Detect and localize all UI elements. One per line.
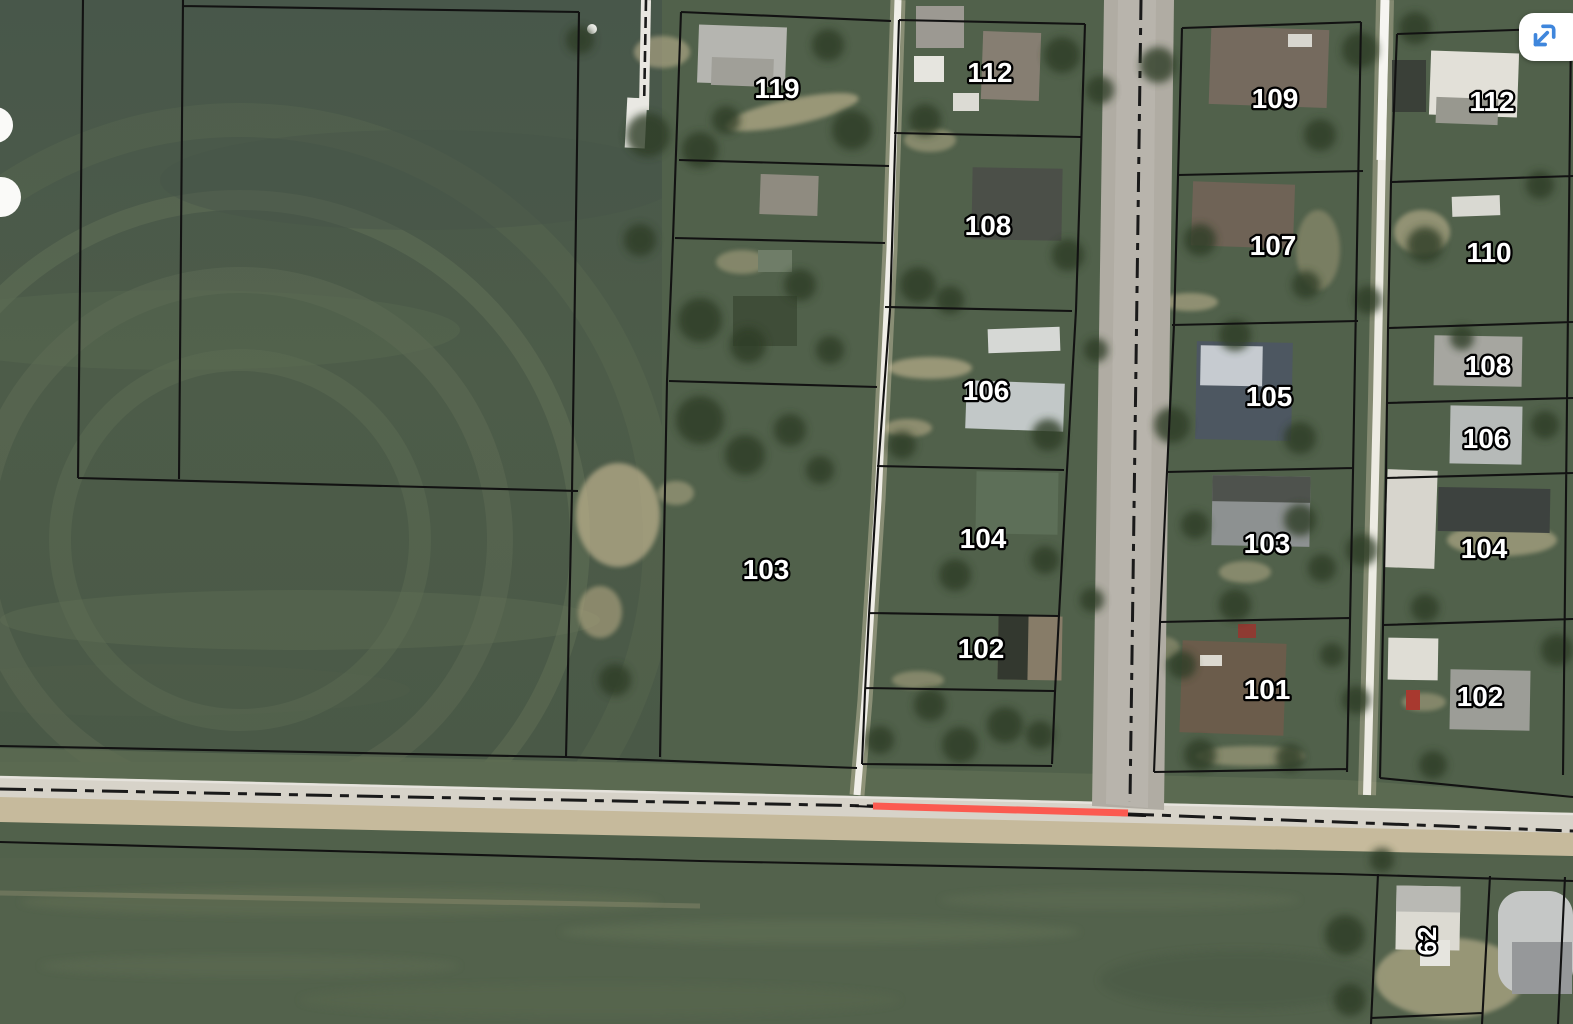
map-viewport: 1191121091121081071101061051081061031041… — [0, 0, 1573, 1024]
map-canvas[interactable]: 1191121091121081071101061051081061031041… — [0, 0, 1573, 1024]
parcel-label-block2-104[interactable]: 104 — [960, 523, 1007, 554]
parcel-label-block3-107[interactable]: 107 — [1250, 230, 1297, 261]
satellite-base-layer — [0, 0, 1573, 1024]
parcel-label-block2-106[interactable]: 106 — [963, 375, 1010, 406]
expand-map-button[interactable] — [1519, 13, 1573, 61]
parcel-label-block3-105[interactable]: 105 — [1246, 381, 1293, 412]
parcel-label-block3-103[interactable]: 103 — [1244, 528, 1291, 559]
parcel-label-block1-119[interactable]: 119 — [754, 73, 799, 104]
parcel-label-west-103[interactable]: 103 — [743, 554, 790, 585]
parcel-label-block4-104[interactable]: 104 — [1461, 533, 1508, 564]
parcel-label-block4-106[interactable]: 106 — [1463, 423, 1510, 454]
parcel-label-block2-112[interactable]: 112 — [967, 57, 1012, 88]
parcel-label-block4-102[interactable]: 102 — [1457, 681, 1504, 712]
collapse-diagonal-arrow-icon — [1528, 22, 1558, 52]
parcel-label-block2-102[interactable]: 102 — [958, 633, 1005, 664]
parcel-label-block3-101[interactable]: 101 — [1244, 674, 1291, 705]
parcel-label-south-62[interactable]: 62 — [1412, 927, 1442, 956]
parcel-label-block2-108[interactable]: 108 — [965, 210, 1012, 241]
parcel-label-block4-108[interactable]: 108 — [1465, 350, 1512, 381]
parcel-label-block3-109[interactable]: 109 — [1252, 83, 1299, 114]
parcel-label-block4-112[interactable]: 112 — [1469, 86, 1514, 117]
parcel-label-block4-110[interactable]: 110 — [1466, 237, 1511, 268]
